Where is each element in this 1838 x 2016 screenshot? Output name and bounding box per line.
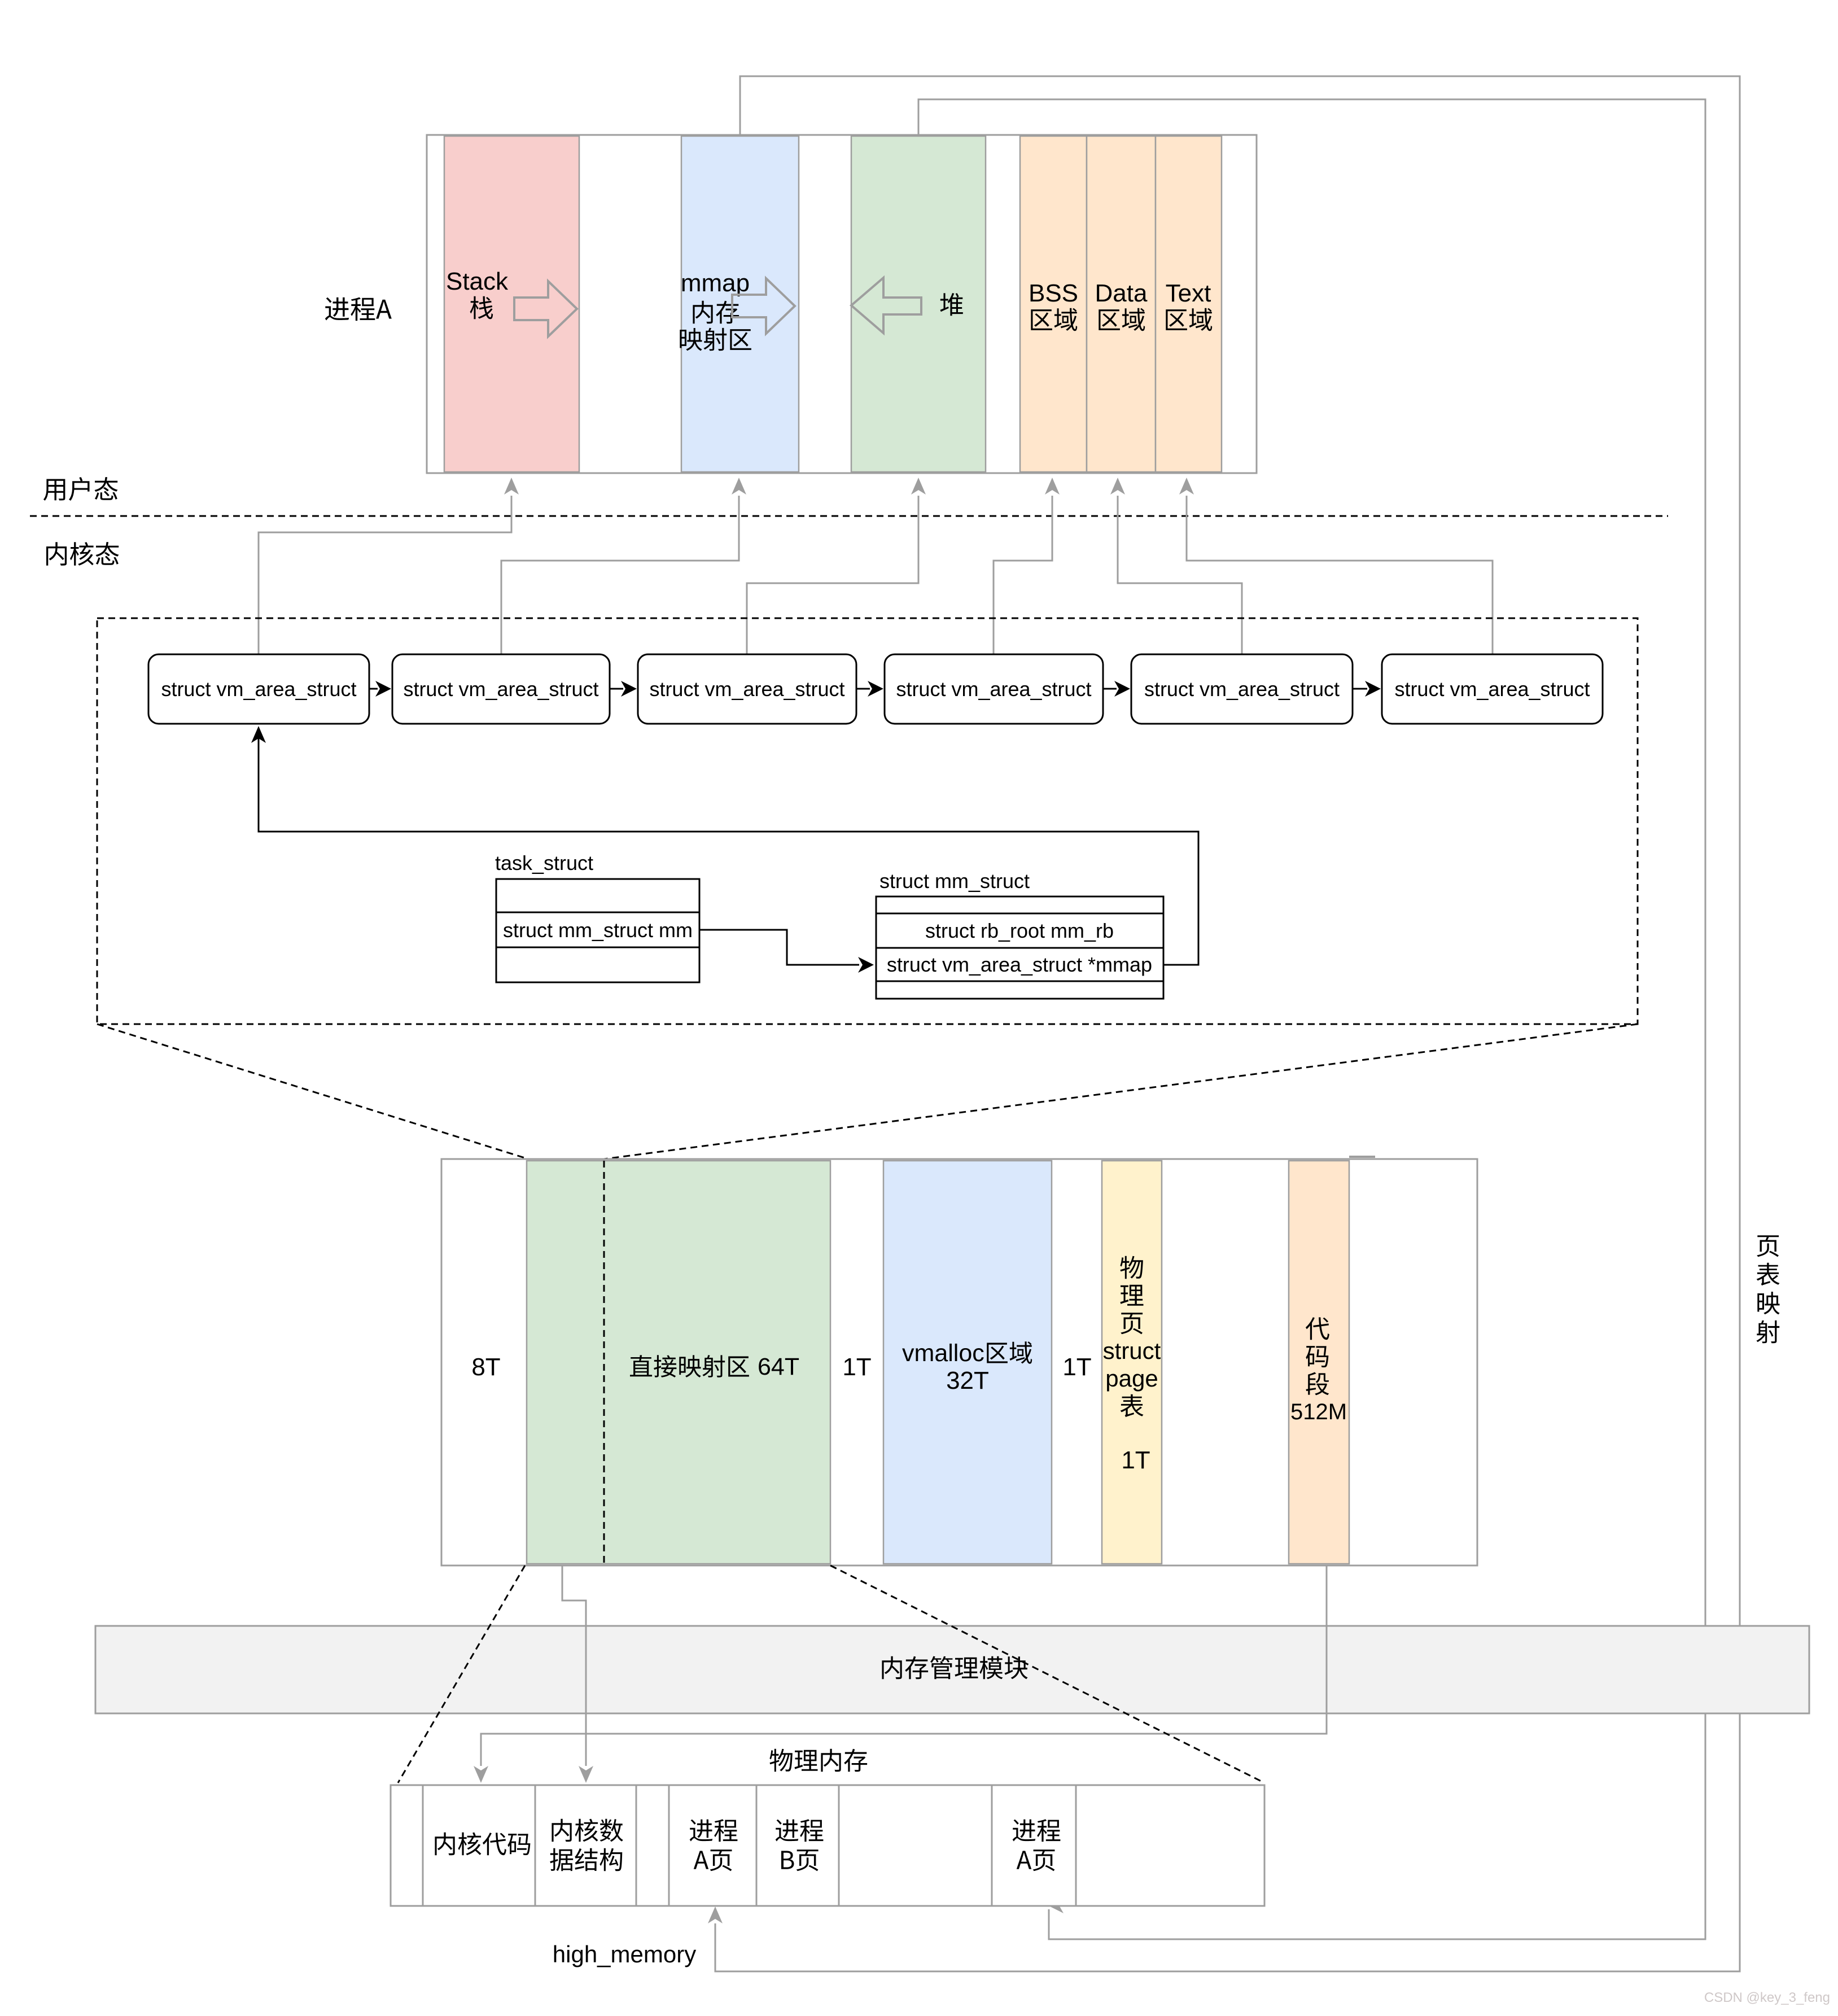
- svg-text:struct mm_struct: struct mm_struct: [879, 869, 1030, 893]
- svg-text:Stack: Stack: [446, 268, 509, 295]
- svg-text:struct vm_area_struct: struct vm_area_struct: [1394, 677, 1590, 701]
- svg-text:512M: 512M: [1290, 1400, 1347, 1424]
- svg-text:CSDN @key_3_feng: CSDN @key_3_feng: [1704, 1990, 1830, 2005]
- svg-text:BSS: BSS: [1029, 279, 1078, 307]
- svg-text:Text: Text: [1166, 279, 1211, 307]
- svg-text:Data: Data: [1095, 279, 1148, 307]
- svg-text:struct vm_area_struct: struct vm_area_struct: [1144, 677, 1340, 701]
- svg-text:1T: 1T: [842, 1353, 871, 1381]
- svg-text:8T: 8T: [471, 1353, 500, 1381]
- svg-text:struct vm_area_struct: struct vm_area_struct: [649, 677, 844, 701]
- svg-text:struct vm_area_struct: struct vm_area_struct: [403, 677, 598, 701]
- svg-text:mmap: mmap: [681, 269, 750, 297]
- svg-text:struct vm_area_struct: struct vm_area_struct: [161, 677, 356, 701]
- svg-text:struct rb_root mm_rb: struct rb_root mm_rb: [925, 919, 1114, 942]
- svg-text:task_struct: task_struct: [495, 851, 593, 874]
- svg-text:struct mm_struct mm: struct mm_struct mm: [503, 919, 693, 942]
- svg-text:high_memory: high_memory: [553, 1941, 696, 1967]
- svg-text:page: page: [1105, 1365, 1158, 1392]
- svg-text:struct vm_area_struct: struct vm_area_struct: [896, 677, 1091, 701]
- svg-text:64T: 64T: [758, 1353, 799, 1380]
- svg-text:32T: 32T: [946, 1367, 989, 1394]
- svg-text:struct: struct: [1103, 1337, 1161, 1364]
- svg-text:struct vm_area_struct *mmap: struct vm_area_struct *mmap: [887, 953, 1152, 976]
- svg-text:1T: 1T: [1121, 1446, 1150, 1474]
- svg-text:vmalloc: vmalloc: [902, 1340, 984, 1367]
- svg-text:1T: 1T: [1062, 1353, 1091, 1381]
